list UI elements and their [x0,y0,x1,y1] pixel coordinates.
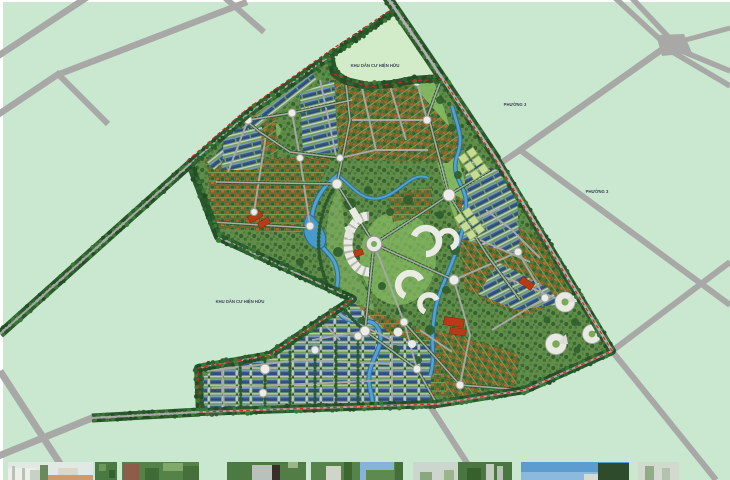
svg-text:KHU DÂN CƯ HIỆN HỮU: KHU DÂN CƯ HIỆN HỮU [351,63,400,68]
svg-text:PHƯỜNG 3: PHƯỜNG 3 [504,102,527,107]
svg-text:PHƯỜNG 3: PHƯỜNG 3 [586,189,609,194]
svg-text:KHU DÂN CƯ HIỆN HỮU: KHU DÂN CƯ HIỆN HỮU [216,299,265,304]
